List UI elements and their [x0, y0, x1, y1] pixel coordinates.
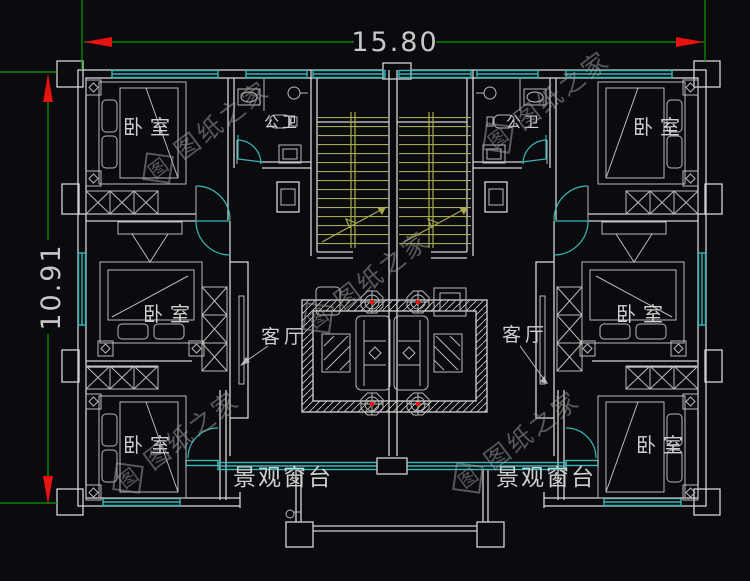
column-top-right [407, 291, 429, 313]
room-label-living-right: 客厅 [502, 324, 548, 346]
room-label-bathroom-left: 公卫 [264, 113, 300, 131]
room-label-bedroom-mid-left: 卧室 [143, 302, 197, 326]
floor-plan: 图 图纸之家 [0, 0, 750, 581]
stair-treads [317, 112, 389, 248]
room-label-bedroom-top-left: 卧室 [123, 115, 177, 139]
porch-column [477, 522, 504, 547]
party-wall-sill-block [377, 458, 407, 474]
dimension-value-width: 15.80 [351, 27, 438, 58]
column-bottom-right [407, 393, 429, 415]
room-label-bedroom-top-right: 卧室 [633, 115, 687, 139]
room-label-bedroom-bottom-right: 卧室 [636, 433, 690, 457]
room-label-living-left: 客厅 [261, 326, 307, 348]
staircase-right [399, 112, 471, 248]
column-bottom-left [361, 393, 383, 415]
staircase-left [317, 112, 389, 248]
label-bay-window-left: 景观窗台 [233, 465, 333, 491]
label-bay-window-right: 景观窗台 [496, 465, 596, 491]
stair-treads [399, 112, 471, 248]
porch-column [286, 522, 313, 547]
dimension-value-height: 10.91 [36, 243, 67, 330]
room-label-bedroom-mid-right: 卧室 [616, 302, 670, 326]
floor-plan-canvas: 图 图纸之家 [0, 0, 750, 581]
